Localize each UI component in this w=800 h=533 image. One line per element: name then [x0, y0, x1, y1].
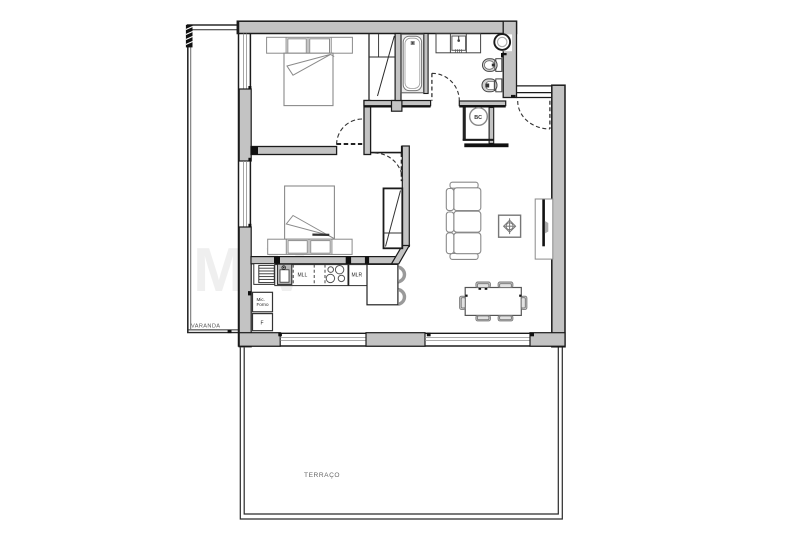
- svg-text:MLL: MLL: [298, 273, 308, 279]
- svg-text:F: F: [261, 321, 264, 327]
- svg-text:Forno: Forno: [257, 302, 269, 307]
- svg-text:MLR: MLR: [352, 273, 363, 279]
- svg-text:TERRAÇO: TERRAÇO: [304, 472, 340, 479]
- svg-text:VARANDA: VARANDA: [191, 324, 220, 330]
- svg-text:BC: BC: [474, 115, 482, 121]
